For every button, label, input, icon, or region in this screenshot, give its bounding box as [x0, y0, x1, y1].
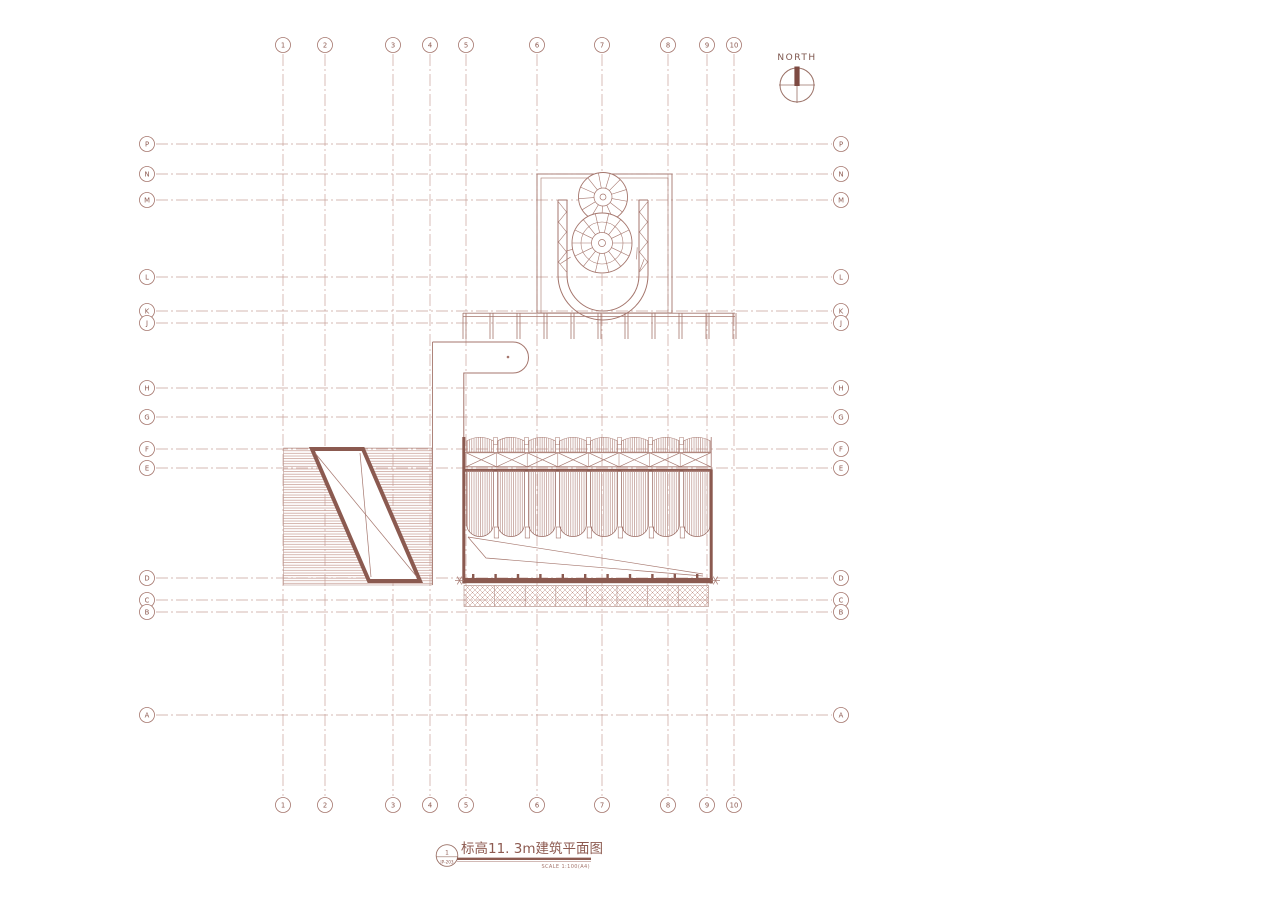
grid-bubble-label-F: F [839, 445, 843, 453]
grid-bubble-label-1: 1 [281, 41, 285, 49]
vault-bay [466, 471, 493, 537]
floor-tick [494, 574, 496, 578]
drawing-ref-bubble: 1 JP-203 [436, 845, 458, 867]
vault-post [556, 527, 561, 538]
ref-number: 1 [445, 851, 449, 857]
grid-bubble-label-10: 10 [730, 41, 739, 49]
vault-bay [497, 471, 524, 537]
grid-bubble-label-3: 3 [391, 41, 395, 49]
grid-bubble-label-7: 7 [600, 41, 604, 49]
grid-bubble-label-3: 3 [391, 801, 395, 809]
canopy-joint [587, 438, 591, 445]
north-label: NORTH [777, 53, 816, 63]
floor-tick [606, 574, 608, 578]
grid-bubble-label-N: N [838, 170, 843, 178]
floor-tick [584, 574, 586, 578]
canopy-scallop [591, 437, 618, 452]
grid-bubble-label-4: 4 [428, 41, 432, 49]
spiral-stair-bottom [572, 213, 632, 273]
grid-bubble-label-C: C [145, 596, 150, 604]
grid-bubble-label-P: P [839, 140, 843, 148]
grid-bubble-label-A: A [839, 711, 844, 719]
canopy-scallop-band [467, 437, 711, 452]
canopy-joint [494, 438, 498, 445]
floor-band [455, 574, 720, 584]
grid-bubble-label-7: 7 [600, 801, 604, 809]
vault-post [525, 527, 530, 538]
grid-bubble-label-N: N [144, 170, 149, 178]
grid-bubble-label-2: 2 [323, 41, 327, 49]
vault-roof [464, 470, 713, 538]
grid-bubble-label-5: 5 [464, 801, 468, 809]
truss-hatch-left [559, 202, 567, 272]
canopy-scallop [684, 437, 711, 452]
grid-bubble-label-M: M [144, 196, 150, 204]
grid-bubble-label-1: 1 [281, 801, 285, 809]
grid-bubble-label-J: J [145, 319, 148, 327]
grid-bubble-label-M: M [838, 196, 844, 204]
grid-bubble-label-L: L [145, 273, 149, 281]
grid-bubble-label-K: K [839, 307, 844, 315]
vault-post [587, 527, 592, 538]
grid-bubble-label-P: P [145, 140, 149, 148]
floor-tick [472, 574, 474, 578]
vault-bay [559, 471, 586, 537]
canopy-scallop [653, 437, 680, 452]
corridor-outline [433, 342, 529, 585]
grid-bubble-label-B: B [145, 608, 150, 616]
grid-bubble-label-E: E [839, 464, 843, 472]
floor-tick [651, 574, 653, 578]
floor-tick [562, 574, 564, 578]
truss-hatch-arc [637, 247, 638, 259]
grid-bubble-label-6: 6 [535, 801, 539, 809]
canopy-scallop [498, 437, 525, 452]
crosshatch-strip [464, 586, 709, 607]
grid-bubble-label-J: J [839, 319, 842, 327]
structural-grid: 1122334455667788991010PPNNMMLLKKJJHHGGFF… [140, 38, 849, 813]
vault-post [618, 527, 623, 538]
grid-bubble-label-4: 4 [428, 801, 432, 809]
canopy-joint [680, 438, 684, 445]
canopy-scallop [467, 437, 494, 452]
grid-bubble-label-A: A [145, 711, 150, 719]
canopy-joint [618, 438, 622, 445]
canopy-joint [525, 438, 529, 445]
canopy-scallop [622, 437, 649, 452]
vault-post [649, 527, 654, 538]
grid-bubble-label-G: G [838, 413, 843, 421]
truss-band [464, 453, 711, 467]
grid-bubble-label-8: 8 [666, 801, 670, 809]
floorplan-canvas: 1122334455667788991010PPNNMMLLKKJJHHGGFF… [0, 0, 1280, 904]
grid-bubble-label-2: 2 [323, 801, 327, 809]
grid-bubble-label-10: 10 [730, 801, 739, 809]
grid-bubble-label-9: 9 [705, 41, 709, 49]
grid-bubble-label-E: E [145, 464, 149, 472]
north-arrow: NORTH [777, 53, 816, 103]
floor-tick [517, 574, 519, 578]
vault-bay [683, 471, 710, 537]
grid-bubble-label-6: 6 [535, 41, 539, 49]
vault-bay [621, 471, 648, 537]
vault-bay [590, 471, 617, 537]
grid-bubble-label-D: D [144, 574, 149, 582]
grid-bubble-label-G: G [144, 413, 149, 421]
vault-post [494, 527, 499, 538]
grid-bubble-label-H: H [838, 384, 843, 392]
ref-sheet: JP-203 [439, 860, 454, 865]
grid-bubble-label-C: C [839, 596, 844, 604]
floor-tick [539, 574, 541, 578]
grid-bubble-label-H: H [144, 384, 149, 392]
vault-post [680, 527, 685, 538]
drawing-sheet: 1122334455667788991010PPNNMMLLKKJJHHGGFF… [0, 0, 1280, 904]
grid-bubble-label-F: F [145, 445, 149, 453]
drawing-title: 标高11. 3m建筑平面图 [461, 840, 603, 857]
floor-tick [674, 574, 676, 578]
floor-tick [629, 574, 631, 578]
drawing-scale: SCALE 1:100(A4) [541, 864, 590, 870]
north-icon [779, 67, 815, 104]
canopy-joint [649, 438, 653, 445]
grid-bubble-label-5: 5 [464, 41, 468, 49]
grid-bubble-label-B: B [839, 608, 844, 616]
canopy-joint [556, 438, 560, 445]
grid-bubble-label-8: 8 [666, 41, 670, 49]
vault-bay [528, 471, 555, 537]
canopy-scallop [560, 437, 587, 452]
grid-bubble-label-D: D [838, 574, 843, 582]
grid-bubble-label-L: L [839, 273, 843, 281]
floor-tick [696, 574, 698, 578]
grid-bubble-label-9: 9 [705, 801, 709, 809]
title-block: 1 JP-203 标高11. 3m建筑平面图 SCALE 1:100(A4) [436, 840, 603, 870]
vault-bay [652, 471, 679, 537]
canopy-scallop [529, 437, 556, 452]
grid-bubble-label-K: K [145, 307, 150, 315]
walkway [463, 313, 736, 339]
